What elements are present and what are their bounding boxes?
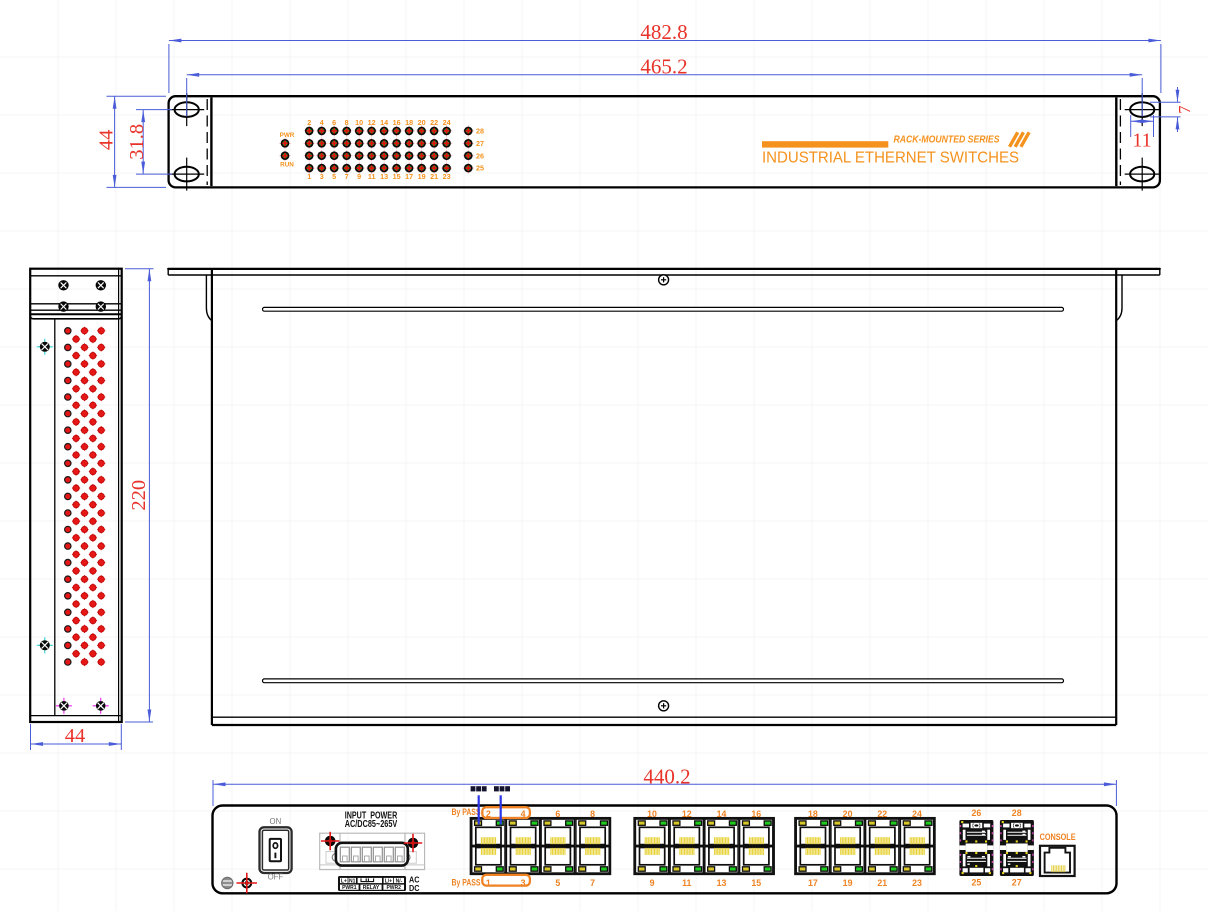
- svg-text:PWR1: PWR1: [342, 885, 357, 891]
- svg-text:N/-: N/-: [396, 878, 403, 884]
- svg-text:440.2: 440.2: [643, 764, 690, 788]
- svg-text:RACK-MOUNTED SERIES: RACK-MOUNTED SERIES: [894, 135, 1000, 146]
- svg-text:27: 27: [1012, 878, 1022, 888]
- svg-text:25: 25: [972, 878, 982, 888]
- svg-text:14: 14: [380, 118, 388, 127]
- svg-text:23: 23: [443, 172, 451, 181]
- svg-text:AC/DC85~265V: AC/DC85~265V: [345, 819, 398, 830]
- svg-text:CONSOLE: CONSOLE: [1040, 832, 1076, 842]
- svg-text:21: 21: [877, 878, 887, 888]
- svg-text:17: 17: [405, 172, 413, 181]
- svg-text:16: 16: [751, 809, 761, 819]
- svg-text:11: 11: [1132, 129, 1151, 151]
- svg-text:19: 19: [843, 878, 853, 888]
- svg-text:ON: ON: [270, 817, 282, 826]
- svg-text:4: 4: [320, 118, 324, 127]
- svg-text:24: 24: [912, 809, 922, 819]
- svg-text:By PASS: By PASS: [452, 807, 481, 817]
- svg-text:OFF: OFF: [268, 873, 284, 882]
- svg-text:1: 1: [307, 172, 311, 181]
- svg-text:L+: L+: [341, 878, 347, 884]
- svg-text:9: 9: [650, 878, 655, 888]
- svg-text:INDUSTRIAL ETHERNET SWITCHES: INDUSTRIAL ETHERNET SWITCHES: [762, 149, 1019, 166]
- svg-text:22: 22: [430, 118, 438, 127]
- svg-text:14: 14: [717, 809, 727, 819]
- svg-text:23: 23: [912, 878, 922, 888]
- svg-text:13: 13: [380, 172, 388, 181]
- svg-text:16: 16: [393, 118, 401, 127]
- svg-text:2: 2: [307, 118, 311, 127]
- svg-text:DC: DC: [409, 883, 420, 893]
- svg-text:PWR: PWR: [280, 132, 295, 139]
- svg-text:RELAY: RELAY: [363, 885, 380, 891]
- svg-text:12: 12: [682, 809, 692, 819]
- svg-text:27: 27: [476, 139, 484, 148]
- svg-text:220: 220: [128, 480, 150, 511]
- svg-text:7: 7: [1175, 105, 1194, 113]
- svg-text:PWR2: PWR2: [386, 885, 401, 891]
- svg-text:20: 20: [843, 809, 853, 819]
- svg-text:26: 26: [972, 808, 982, 818]
- svg-text:5: 5: [332, 172, 336, 181]
- svg-text:8: 8: [345, 118, 349, 127]
- svg-text:28: 28: [1012, 808, 1022, 818]
- svg-text:25: 25: [476, 164, 484, 173]
- svg-text:19: 19: [418, 172, 426, 181]
- svg-text:By PASS: By PASS: [452, 878, 481, 888]
- svg-text:17: 17: [808, 878, 818, 888]
- svg-text:3: 3: [320, 172, 324, 181]
- svg-text:28: 28: [476, 127, 484, 136]
- svg-text:15: 15: [751, 878, 761, 888]
- svg-text:24: 24: [443, 118, 451, 127]
- svg-text:465.2: 465.2: [640, 54, 687, 78]
- svg-text:9: 9: [357, 172, 361, 181]
- svg-text:11: 11: [368, 172, 376, 181]
- svg-text:11: 11: [682, 878, 691, 888]
- svg-text:L/+: L/+: [385, 878, 392, 884]
- svg-text:21: 21: [430, 172, 438, 181]
- svg-text:8: 8: [590, 809, 595, 819]
- svg-text:44: 44: [65, 725, 86, 747]
- svg-text:5: 5: [555, 878, 560, 888]
- svg-text:10: 10: [647, 809, 657, 819]
- svg-text:18: 18: [808, 809, 818, 819]
- svg-text:7: 7: [590, 878, 595, 888]
- svg-text:22: 22: [877, 809, 887, 819]
- svg-text:10: 10: [355, 118, 363, 127]
- svg-text:20: 20: [418, 118, 426, 127]
- svg-text:12: 12: [368, 118, 376, 127]
- svg-text:RUN: RUN: [280, 161, 294, 168]
- svg-text:31.8: 31.8: [126, 124, 148, 160]
- svg-text:6: 6: [332, 118, 336, 127]
- svg-text:N1: N1: [349, 878, 356, 884]
- svg-text:26: 26: [476, 151, 484, 160]
- svg-text:6: 6: [555, 809, 560, 819]
- svg-text:15: 15: [393, 172, 401, 181]
- svg-text:44: 44: [96, 130, 118, 151]
- svg-text:482.8: 482.8: [640, 20, 687, 44]
- svg-text:18: 18: [405, 118, 413, 127]
- svg-text:7: 7: [345, 172, 349, 181]
- svg-text:13: 13: [717, 878, 727, 888]
